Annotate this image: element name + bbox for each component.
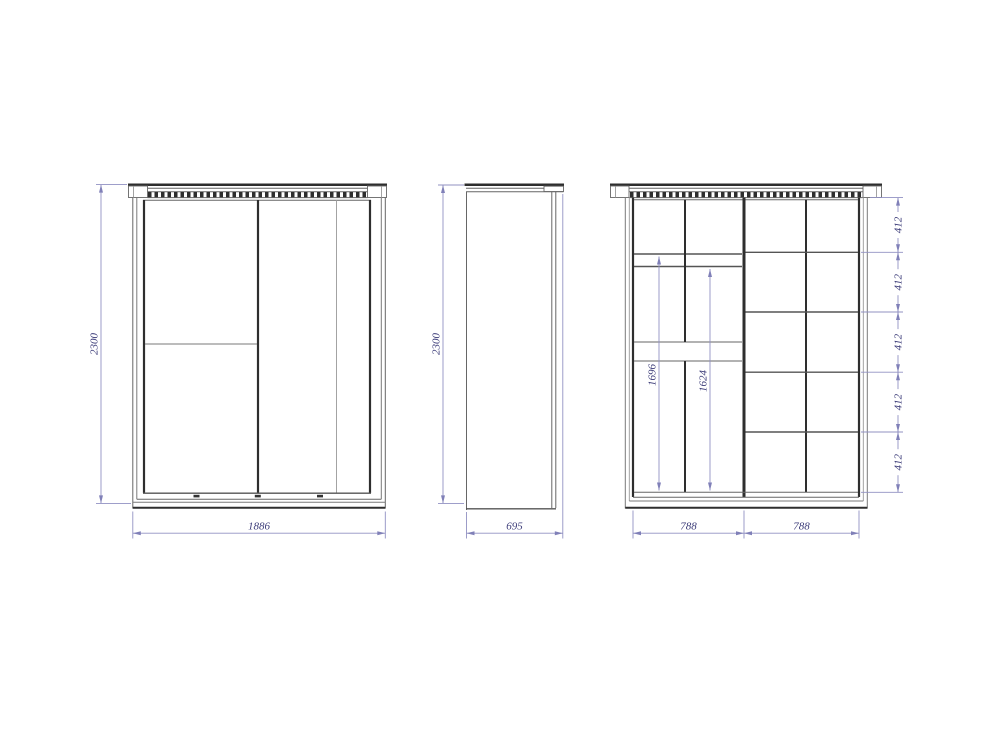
arrow-icon <box>467 531 475 535</box>
arrow-icon <box>441 185 445 193</box>
dim-label-front-width: 1886 <box>248 521 271 533</box>
arrow-icon <box>896 312 900 320</box>
dim-label-section-width-left: 788 <box>680 521 697 533</box>
arrow-icon <box>896 198 900 206</box>
dim-label-side-depth: 695 <box>506 521 523 533</box>
arrow-icon <box>555 531 563 535</box>
arrow-icon <box>99 185 103 193</box>
side-dimensions: 2300 695 <box>431 185 563 539</box>
arrow-icon <box>377 531 385 535</box>
dim-label-front-height: 2300 <box>89 333 101 356</box>
arrow-icon <box>708 483 712 491</box>
arrow-icon <box>633 531 641 535</box>
arrow-icon <box>896 432 900 440</box>
arrow-icon <box>99 495 103 503</box>
side-cornice-cap-front <box>544 186 564 191</box>
dim-label-shelf-gap-3: 412 <box>893 333 905 350</box>
side-view <box>465 184 565 511</box>
interior-cornice-cap-left <box>611 186 630 198</box>
arrow-icon <box>708 269 712 277</box>
front-cornice-top-board <box>128 184 387 187</box>
interior-cornice-cap-right <box>863 186 882 198</box>
arrow-icon <box>441 495 445 503</box>
dim-label-rail-height-1: 1696 <box>647 364 659 387</box>
arrow-icon <box>896 372 900 380</box>
arrow-icon <box>896 484 900 492</box>
dim-label-shelf-gap-2: 412 <box>893 273 905 290</box>
front-door-roller-center <box>255 495 261 498</box>
arrow-icon <box>896 304 900 312</box>
arrow-icon <box>896 364 900 372</box>
arrow-icon <box>896 252 900 260</box>
front-cornice-cap-right <box>368 186 387 198</box>
dim-label-shelf-gap-4: 412 <box>893 393 905 410</box>
dim-label-shelf-gap-5: 412 <box>893 453 905 470</box>
dim-label-rail-height-2: 1624 <box>698 370 710 393</box>
interior-cornice-top-board <box>610 184 882 187</box>
technical-drawing: 2300 1886 2300 695 <box>0 0 1000 750</box>
front-view <box>128 184 387 509</box>
dim-label-side-height: 2300 <box>431 333 443 356</box>
interior-view <box>610 184 882 509</box>
arrow-icon <box>744 531 752 535</box>
arrow-icon <box>851 531 859 535</box>
arrow-icon <box>736 531 744 535</box>
side-cornice-top-board <box>465 184 565 187</box>
drawing-canvas: 2300 1886 2300 695 <box>0 0 1000 750</box>
dim-label-shelf-gap-1: 412 <box>893 216 905 233</box>
arrow-icon <box>896 424 900 432</box>
front-door-roller-right <box>317 495 323 498</box>
arrow-icon <box>133 531 141 535</box>
arrow-icon <box>896 244 900 252</box>
interior-dimensions: 1696 1624 412 412 412 412 412 <box>633 198 905 539</box>
arrow-icon <box>657 483 661 491</box>
arrow-icon <box>657 257 661 265</box>
front-door-roller-left <box>194 495 200 498</box>
front-cornice-cap-left <box>129 186 148 198</box>
dim-label-section-width-right: 788 <box>793 521 810 533</box>
